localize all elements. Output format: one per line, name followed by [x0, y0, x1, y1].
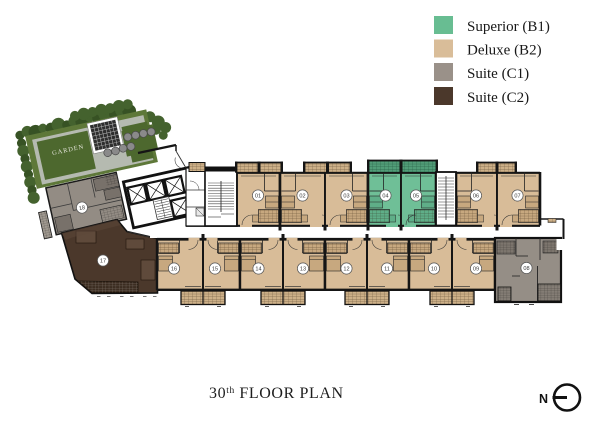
- svg-text:03: 03: [343, 194, 349, 200]
- svg-text:30th FLOOR PLAN: 30th FLOOR PLAN: [209, 385, 344, 402]
- svg-text:15: 15: [212, 267, 218, 273]
- svg-text:17: 17: [100, 259, 106, 265]
- svg-text:08: 08: [523, 266, 529, 272]
- svg-text:04: 04: [382, 194, 388, 200]
- svg-text:14: 14: [255, 267, 261, 273]
- svg-text:Suite (C1): Suite (C1): [467, 66, 529, 82]
- svg-text:Deluxe (B2): Deluxe (B2): [467, 43, 542, 59]
- svg-text:02: 02: [299, 194, 305, 200]
- svg-text:Suite (C2): Suite (C2): [467, 90, 529, 106]
- svg-text:07: 07: [514, 194, 520, 200]
- svg-text:13: 13: [300, 267, 306, 273]
- svg-text:01: 01: [255, 194, 261, 200]
- svg-text:09: 09: [473, 267, 479, 273]
- svg-text:Superior (B1): Superior (B1): [467, 19, 550, 35]
- svg-text:11: 11: [384, 267, 390, 273]
- svg-text:N: N: [539, 392, 548, 406]
- svg-text:10: 10: [431, 267, 437, 273]
- svg-text:05: 05: [413, 194, 419, 200]
- svg-text:06: 06: [473, 194, 479, 200]
- svg-text:16: 16: [171, 267, 177, 273]
- svg-text:12: 12: [343, 267, 349, 273]
